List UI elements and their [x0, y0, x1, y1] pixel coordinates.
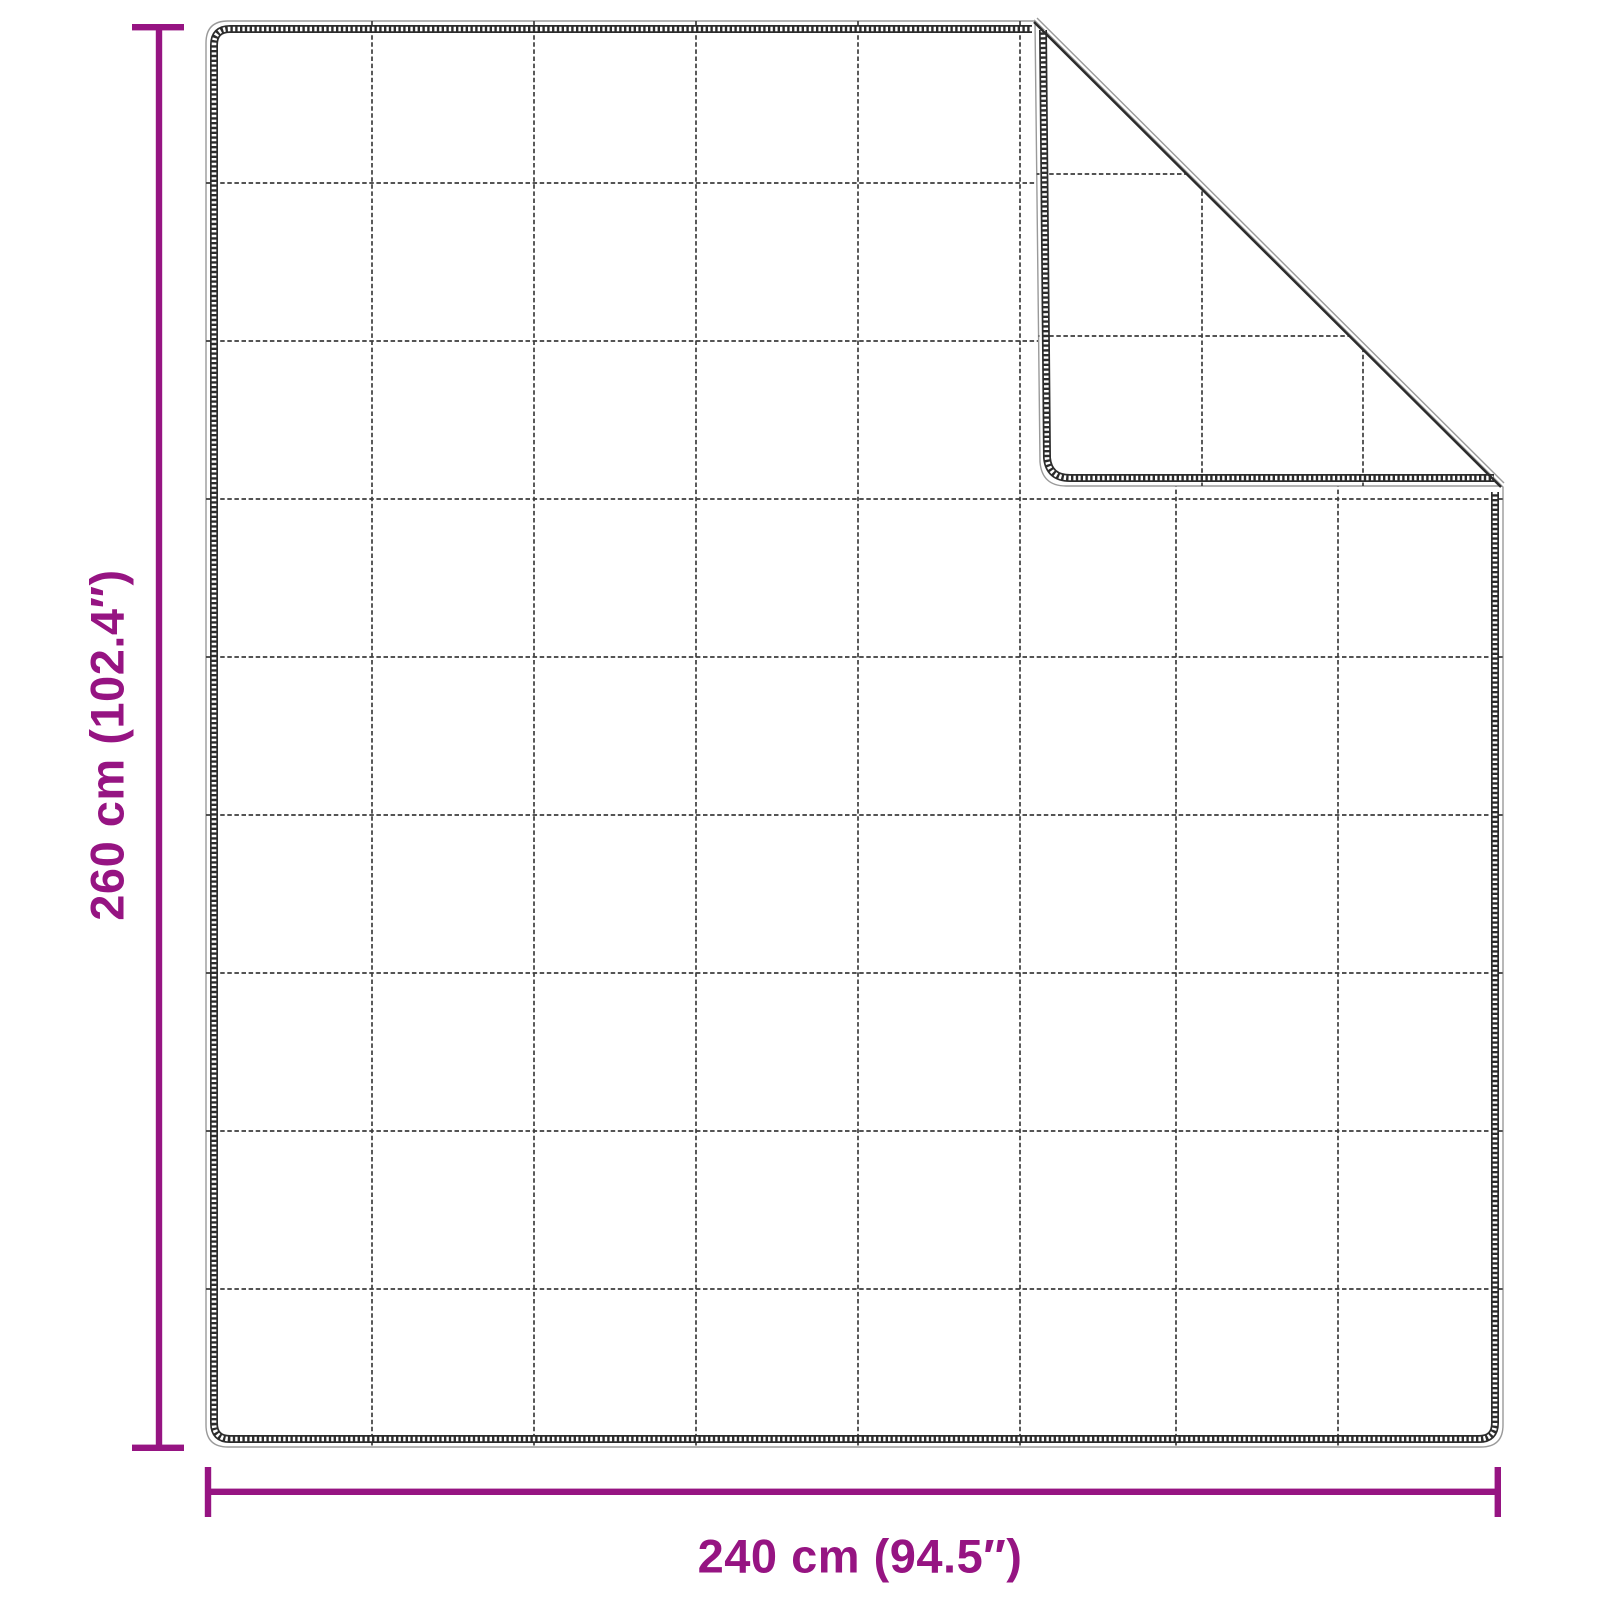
height-dimension-line	[132, 24, 184, 1451]
width-dimension-line	[205, 1467, 1501, 1517]
width-dimension-label: 240 cm (94.5″)	[698, 1529, 1023, 1584]
blanket-outline	[206, 21, 1503, 1447]
blanket-drawing	[0, 0, 1600, 1600]
dimension-diagram: 260 cm (102.4″) 240 cm (94.5″)	[0, 0, 1600, 1600]
height-dimension-label: 260 cm (102.4″)	[80, 569, 135, 920]
